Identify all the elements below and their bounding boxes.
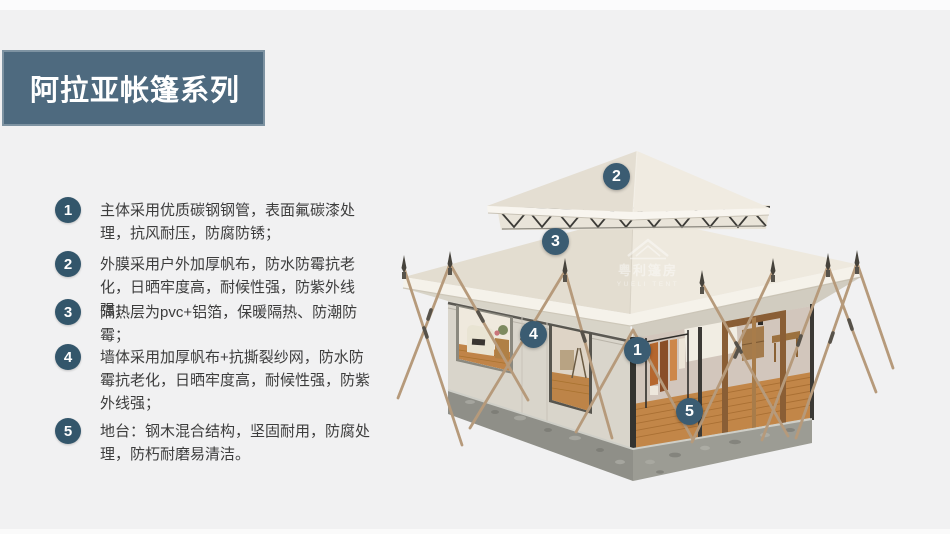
feature-item-4: 4 墙体采用加厚帆布+抗撕裂纱网，防水防霉抗老化，日晒牢度高，耐候性强，防紫外线… — [55, 346, 372, 415]
feature-badge-5: 5 — [55, 418, 81, 444]
feature-number: 3 — [64, 304, 72, 321]
feature-badge-3: 3 — [55, 299, 81, 325]
page-title: 阿拉亚帐篷系列 — [30, 67, 240, 109]
tent-callout-1: 1 — [624, 337, 651, 364]
top-strip — [0, 0, 950, 10]
feature-item-3: 3 隔热层为pvc+铝箔，保暖隔热、防潮防霉； — [55, 301, 372, 347]
feature-number: 1 — [64, 202, 72, 219]
feature-item-1: 1 主体采用优质碳钢钢管，表面氟碳漆处理，抗风耐压，防腐防锈； — [55, 199, 372, 245]
feature-text-4: 墙体采用加厚帆布+抗撕裂纱网，防水防霉抗老化，日晒牢度高，耐候性强，防紫外线强； — [100, 346, 372, 415]
feature-text-1: 主体采用优质碳钢钢管，表面氟碳漆处理，抗风耐压，防腐防锈； — [100, 199, 372, 245]
upper-roof — [487, 151, 770, 220]
feature-badge-1: 1 — [55, 197, 81, 223]
tent-callout-5: 5 — [676, 398, 703, 425]
feature-badge-2: 2 — [55, 251, 81, 277]
slide-background: 阿拉亚帐篷系列 1 主体采用优质碳钢钢管，表面氟碳漆处理，抗风耐压，防腐防锈； … — [0, 0, 950, 534]
tent-callout-4: 4 — [520, 321, 547, 348]
feature-number: 5 — [64, 423, 72, 440]
feature-badge-4: 4 — [55, 344, 81, 370]
watermark-cn-text: 粤利篷房 — [618, 263, 678, 278]
feature-text-5: 地台：钢木混合结构，坚固耐用，防腐处理，防朽耐磨易清洁。 — [100, 420, 372, 466]
feature-text-3: 隔热层为pvc+铝箔，保暖隔热、防潮防霉； — [100, 301, 372, 347]
tent-callout-3: 3 — [542, 228, 569, 255]
title-banner: 阿拉亚帐篷系列 — [2, 50, 265, 126]
feature-number: 4 — [64, 349, 72, 366]
tent-callout-2: 2 — [603, 163, 630, 190]
rear-corner-post — [810, 304, 814, 420]
tent-illustration: 粤利篷房 YUELI TENT — [390, 140, 950, 534]
feature-number: 2 — [64, 256, 72, 273]
feature-item-5: 5 地台：钢木混合结构，坚固耐用，防腐处理，防朽耐磨易清洁。 — [55, 420, 372, 466]
watermark-en-text: YUELI TENT — [617, 281, 679, 288]
